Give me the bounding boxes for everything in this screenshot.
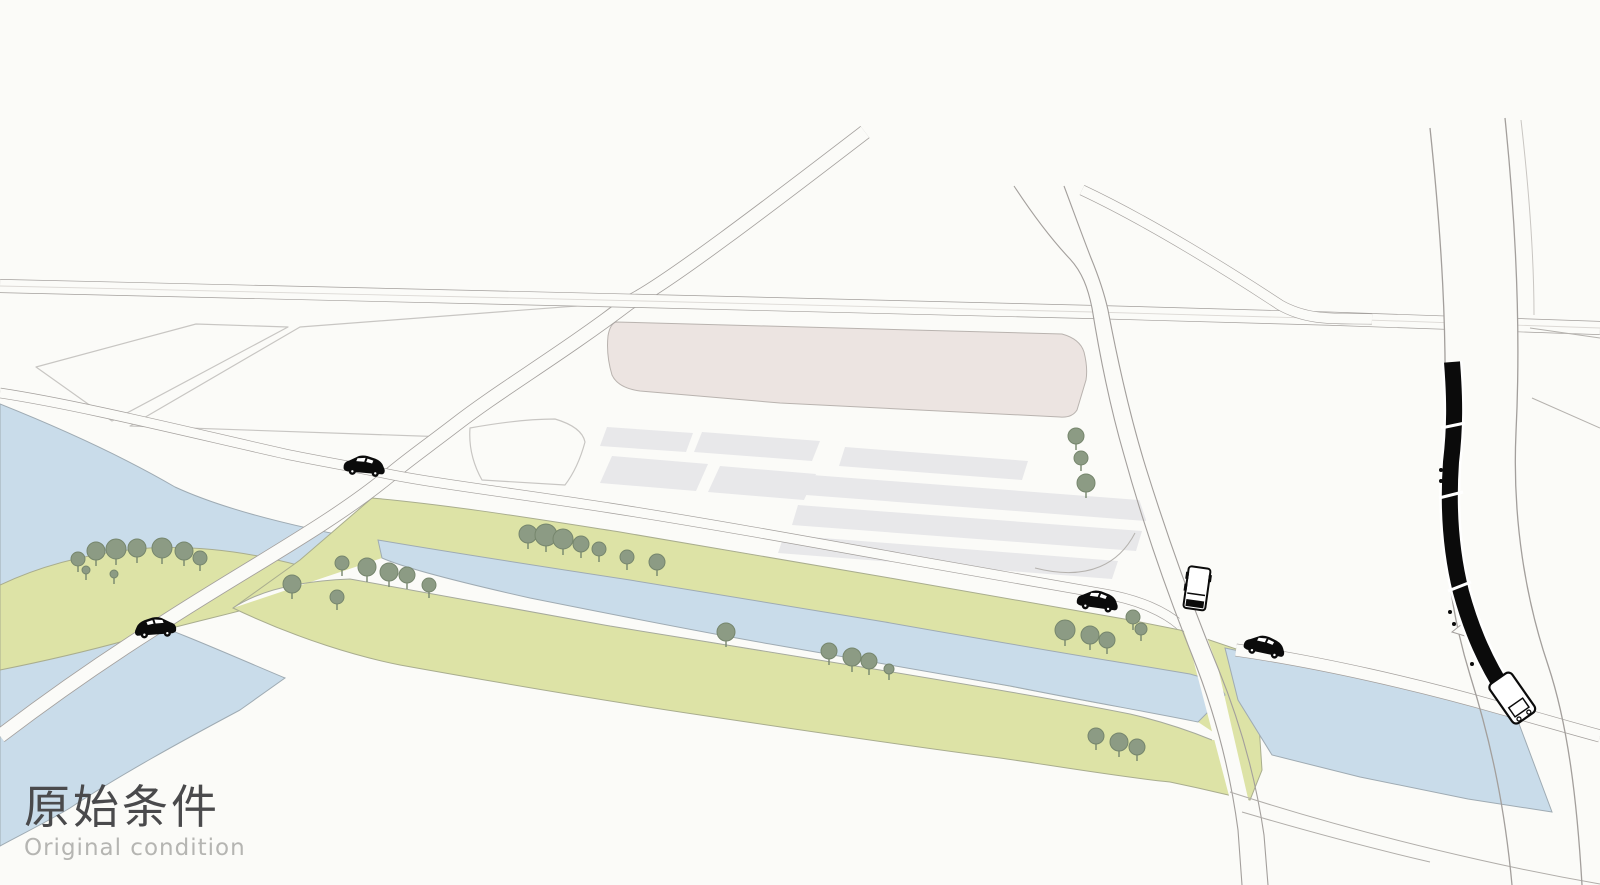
site-plan-canvas	[0, 0, 1600, 885]
page-title: 原始条件	[24, 782, 246, 833]
page-subtitle: Original condition	[24, 835, 246, 861]
white-plot	[470, 419, 585, 485]
title-block: 原始条件 Original condition	[24, 782, 246, 861]
site-plan-diagram: 原始条件 Original condition	[0, 0, 1600, 885]
